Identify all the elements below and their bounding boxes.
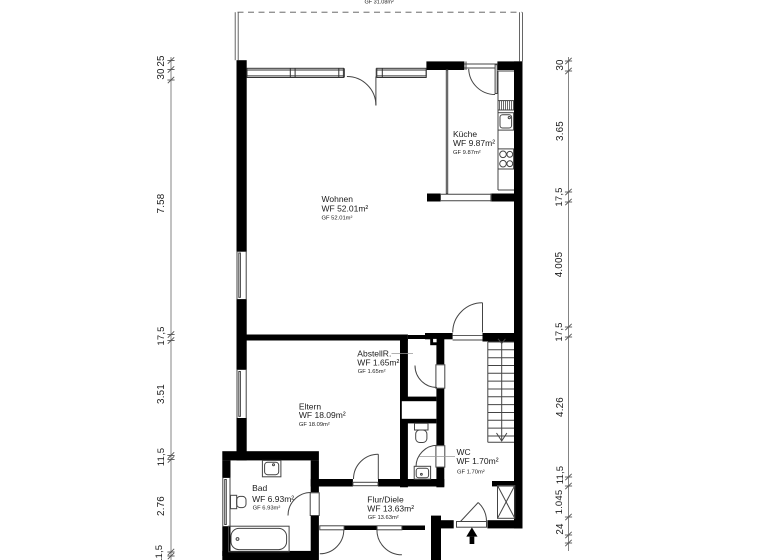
svg-text:WF 6.93m²: WF 6.93m²	[252, 494, 294, 504]
svg-text:4.26: 4.26	[555, 397, 566, 417]
svg-text:GF 18.09m²: GF 18.09m²	[299, 422, 330, 428]
svg-text:17,5: 17,5	[554, 187, 565, 206]
svg-text:24: 24	[555, 523, 566, 535]
svg-text:11,5: 11,5	[555, 466, 566, 485]
svg-text:1.045: 1.045	[554, 490, 565, 515]
svg-text:Bad: Bad	[252, 483, 267, 493]
svg-text:GF 13.63m²: GF 13.63m²	[368, 515, 399, 521]
svg-text:3.51: 3.51	[156, 384, 167, 404]
svg-text:WF 13.63m²: WF 13.63m²	[367, 504, 414, 514]
svg-text:3.65: 3.65	[555, 121, 566, 141]
svg-text:GF 1.65m²: GF 1.65m²	[358, 369, 386, 375]
svg-text:2.76: 2.76	[156, 496, 167, 516]
svg-text:30: 30	[555, 59, 566, 71]
svg-text:WF 1.65m²: WF 1.65m²	[357, 358, 399, 368]
svg-text:25: 25	[156, 55, 167, 67]
svg-text:4.005: 4.005	[554, 251, 565, 277]
svg-text:WF 9.87m²: WF 9.87m²	[453, 138, 495, 148]
svg-text:GF 31.08m²: GF 31.08m²	[365, 0, 395, 6]
svg-text:11,5: 11,5	[156, 448, 167, 467]
svg-text:30: 30	[156, 68, 167, 80]
svg-text:GF 6.93m²: GF 6.93m²	[253, 506, 281, 512]
svg-text:7.58: 7.58	[156, 193, 167, 213]
svg-text:GF 1.70m²: GF 1.70m²	[457, 469, 485, 475]
svg-text:WF 52.01m²: WF 52.01m²	[322, 203, 369, 213]
svg-text:17,5: 17,5	[554, 322, 565, 341]
svg-text:WF 1.70m²: WF 1.70m²	[457, 456, 499, 466]
svg-text:GF 52.01m²: GF 52.01m²	[322, 215, 353, 221]
svg-text:17,5: 17,5	[156, 326, 167, 345]
svg-text:GF 9.87m²: GF 9.87m²	[453, 150, 481, 156]
svg-text:WF 18.09m²: WF 18.09m²	[299, 410, 346, 420]
svg-text:11,5: 11,5	[154, 545, 165, 560]
